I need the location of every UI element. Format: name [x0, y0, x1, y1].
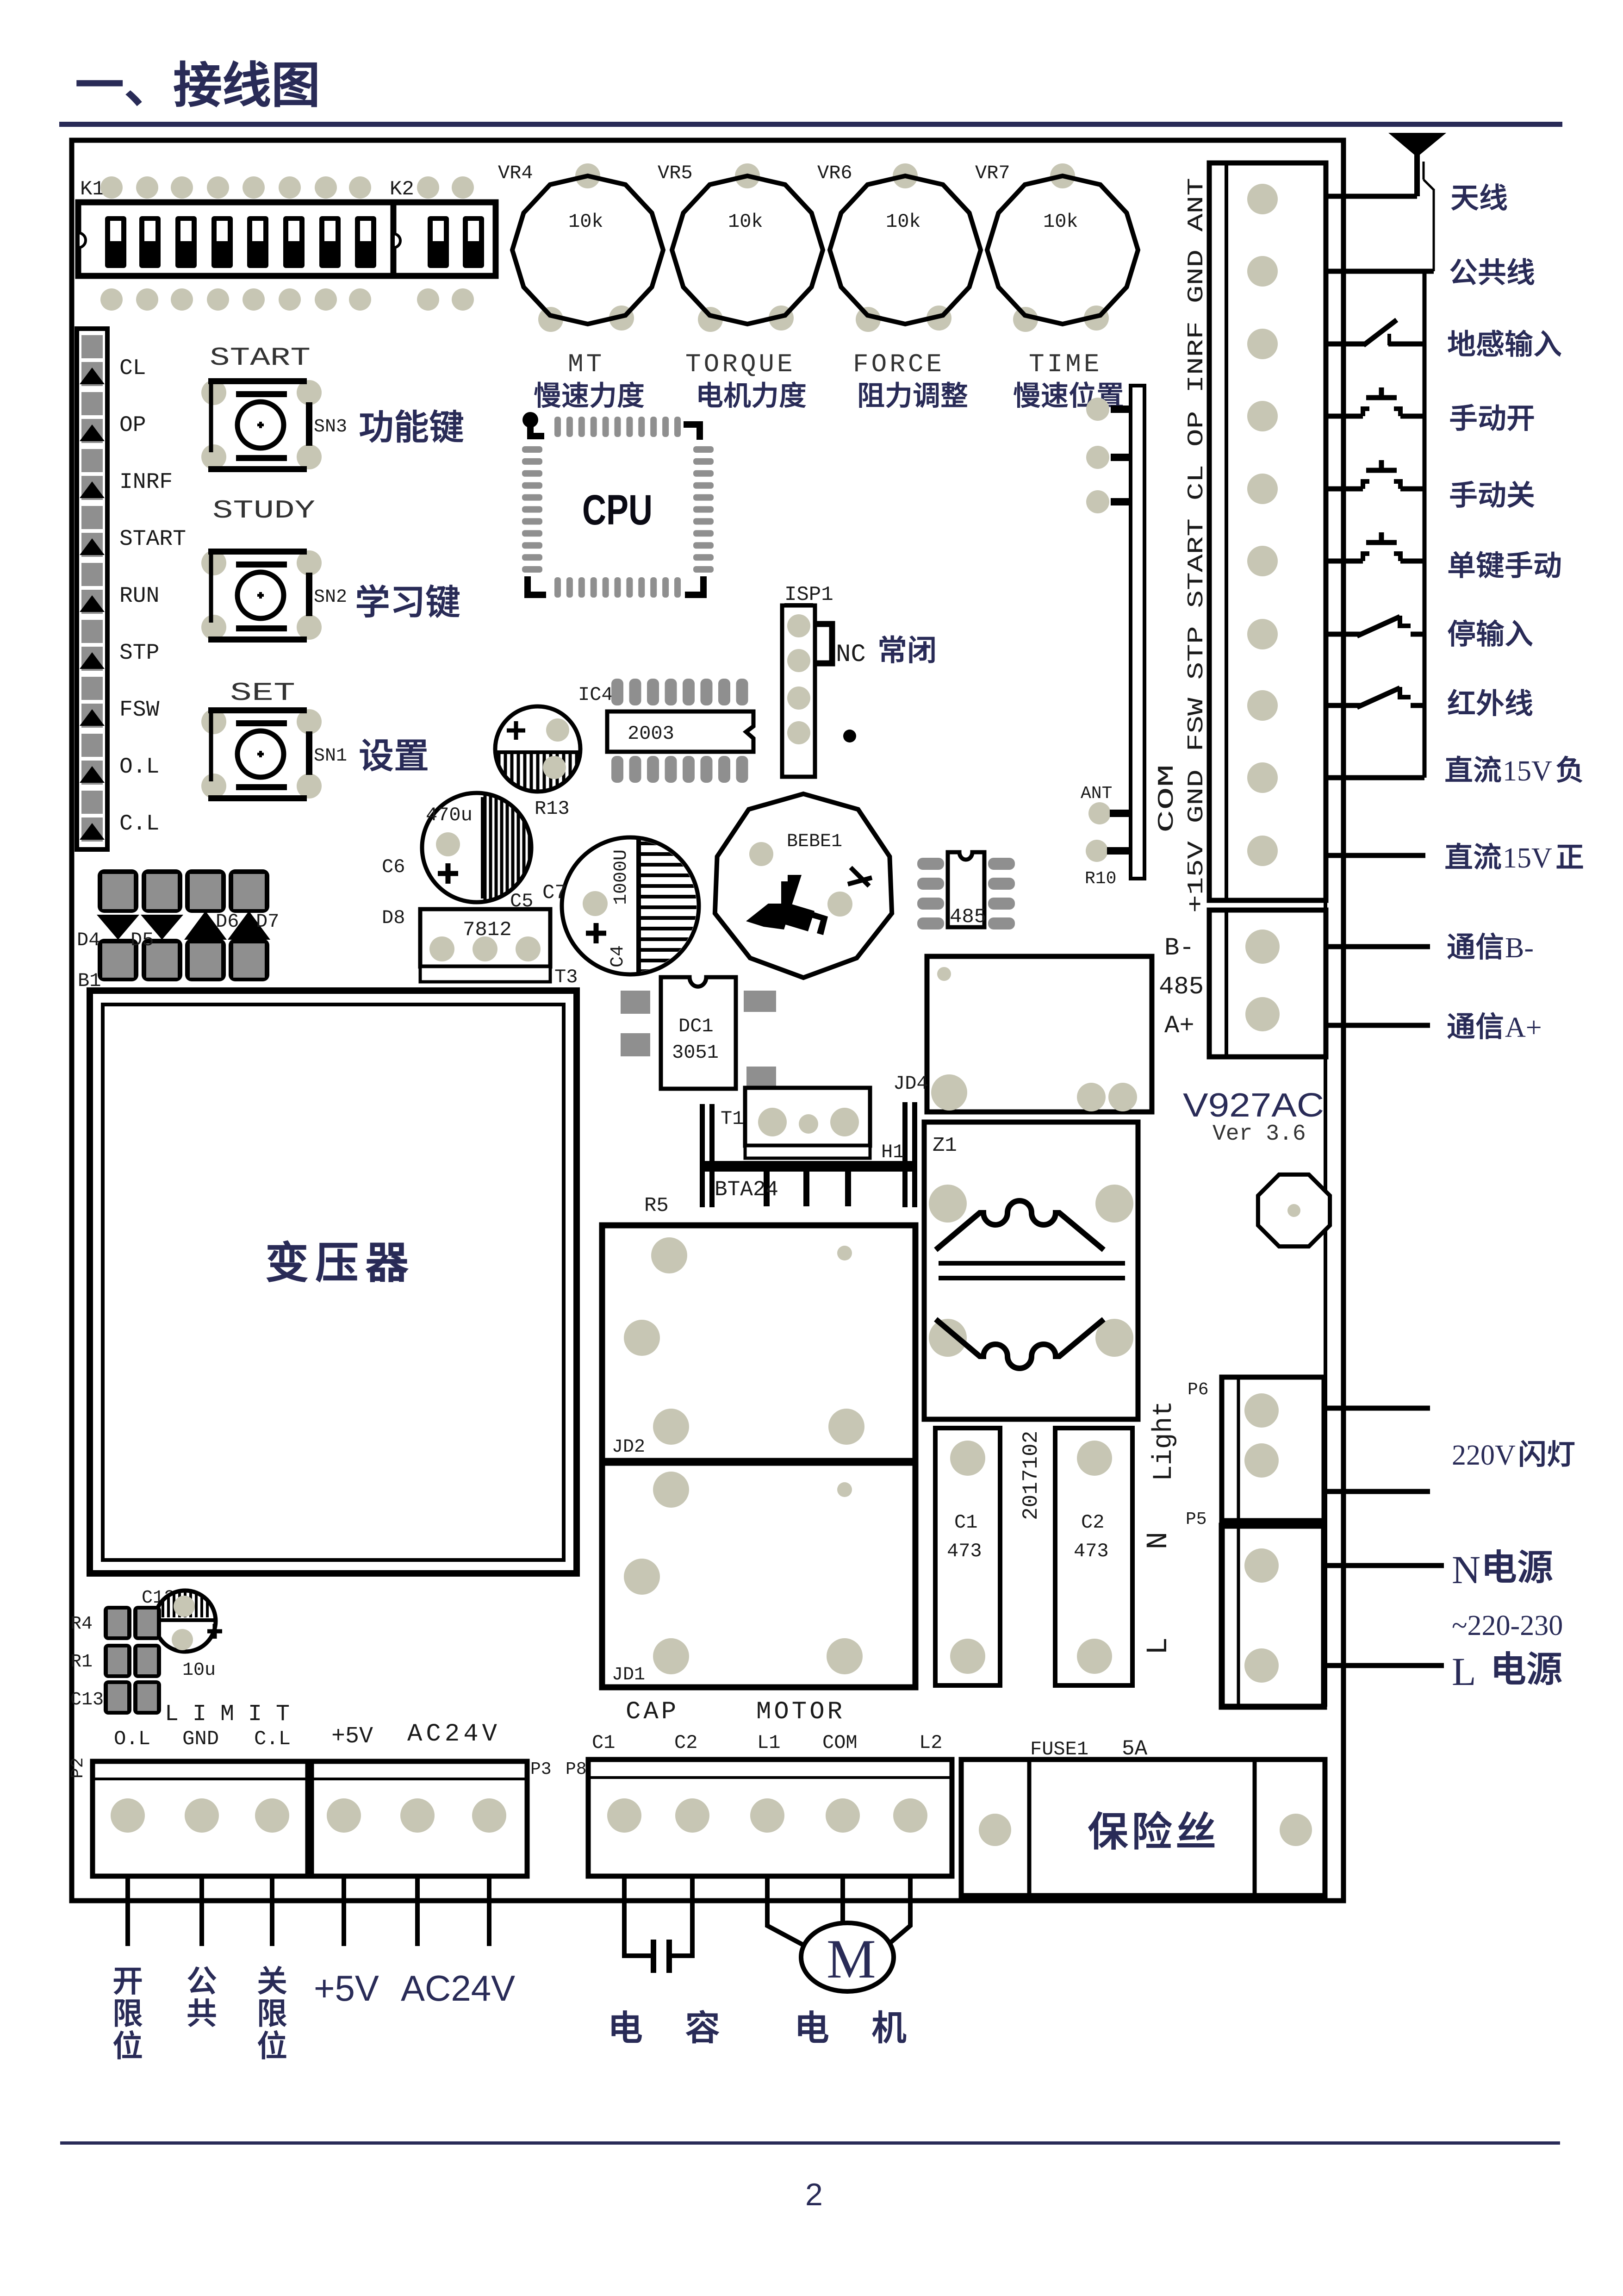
svg-text:D8: D8: [382, 907, 405, 929]
svg-text:BEBE1: BEBE1: [787, 831, 842, 852]
svg-text:SN3: SN3: [314, 417, 347, 437]
svg-text:N: N: [1452, 1547, 1480, 1592]
svg-text:L1: L1: [757, 1732, 780, 1754]
svg-text:R1: R1: [70, 1652, 93, 1672]
svg-text:MOTOR: MOTOR: [756, 1698, 845, 1726]
svg-text:VR7: VR7: [975, 162, 1010, 184]
svg-text:473: 473: [947, 1540, 982, 1562]
svg-text:COM: COM: [1155, 764, 1180, 833]
svg-text:473: 473: [1074, 1540, 1109, 1562]
svg-text:NC: NC: [836, 641, 866, 669]
svg-text:T1: T1: [721, 1108, 744, 1130]
svg-text:A+: A+: [1505, 1012, 1542, 1043]
svg-text:VR4: VR4: [498, 162, 533, 184]
svg-text:+15V GND FSW STP START CL OP I: +15V GND FSW STP START CL OP INRF GND AN…: [1184, 178, 1209, 913]
svg-text:GND: GND: [182, 1728, 219, 1751]
svg-text:SN1: SN1: [314, 746, 347, 767]
svg-text:CL: CL: [119, 356, 146, 381]
svg-text:C4: C4: [608, 945, 628, 967]
svg-text:JD4: JD4: [893, 1073, 928, 1095]
svg-text:JD2: JD2: [612, 1437, 645, 1458]
svg-text:L2: L2: [919, 1732, 942, 1754]
svg-text:2: 2: [805, 2177, 823, 2212]
svg-text:SN2: SN2: [314, 587, 347, 608]
svg-text:P2: P2: [68, 1757, 88, 1778]
svg-text:TORQUE: TORQUE: [685, 349, 796, 379]
svg-text:OP: OP: [119, 413, 146, 438]
svg-text:INRF: INRF: [119, 470, 173, 495]
svg-text:B-: B-: [1164, 934, 1194, 962]
svg-text:N: N: [1142, 1532, 1175, 1549]
svg-text:RUN: RUN: [119, 584, 159, 609]
svg-text:~220-230: ~220-230: [1452, 1610, 1563, 1641]
svg-text:D5: D5: [131, 929, 154, 951]
svg-text:L: L: [1452, 1649, 1476, 1694]
svg-text:P5: P5: [1186, 1510, 1207, 1529]
svg-text:C1: C1: [592, 1732, 615, 1754]
svg-text:H1: H1: [881, 1141, 904, 1163]
svg-text:C6: C6: [382, 856, 405, 878]
svg-text:C1: C1: [954, 1511, 977, 1534]
svg-text:485: 485: [1159, 973, 1204, 1001]
svg-text:O.L: O.L: [114, 1728, 150, 1751]
svg-text:START: START: [210, 343, 311, 373]
svg-text:C.L: C.L: [119, 811, 159, 836]
svg-text:D6: D6: [216, 911, 239, 933]
svg-text:M: M: [827, 1928, 876, 1990]
svg-text:FSW: FSW: [119, 698, 160, 723]
svg-text:+5V: +5V: [331, 1723, 373, 1750]
svg-text:A+: A+: [1164, 1012, 1194, 1040]
svg-text:CPU: CPU: [582, 487, 653, 534]
svg-text:C2: C2: [674, 1732, 697, 1754]
svg-text:R4: R4: [70, 1614, 93, 1635]
svg-text:ANT: ANT: [1081, 784, 1112, 804]
svg-text:B-: B-: [1505, 932, 1534, 964]
svg-text:DC1: DC1: [678, 1015, 714, 1037]
svg-text:Z1: Z1: [933, 1134, 957, 1157]
svg-text:CAP: CAP: [626, 1698, 679, 1726]
svg-text:470u: 470u: [426, 804, 473, 826]
svg-text:P8: P8: [566, 1759, 587, 1779]
svg-text:Light: Light: [1149, 1401, 1179, 1481]
svg-text:C7: C7: [542, 881, 567, 905]
svg-text:MT: MT: [568, 349, 604, 379]
svg-text:C2: C2: [1081, 1511, 1104, 1534]
svg-text:R5: R5: [644, 1194, 669, 1217]
svg-text:485: 485: [950, 905, 986, 929]
svg-text:15V: 15V: [1503, 755, 1552, 787]
svg-text:1000U: 1000U: [611, 849, 632, 905]
svg-text:COM: COM: [822, 1732, 858, 1754]
svg-text:10k: 10k: [728, 211, 763, 233]
svg-text:10k: 10k: [1043, 211, 1078, 233]
svg-text:2017102: 2017102: [1019, 1431, 1043, 1520]
svg-text:2003: 2003: [628, 723, 674, 745]
svg-text:C.L: C.L: [254, 1728, 291, 1751]
svg-text:START: START: [119, 527, 186, 552]
svg-text:220V: 220V: [1452, 1440, 1516, 1471]
svg-text:STP: STP: [119, 641, 159, 666]
svg-text:10k: 10k: [886, 211, 921, 233]
svg-text:15V: 15V: [1503, 842, 1552, 874]
svg-text:JD1: JD1: [612, 1665, 645, 1685]
svg-text:TIME: TIME: [1029, 349, 1102, 379]
svg-text:STUDY: STUDY: [212, 496, 315, 525]
svg-text:R10: R10: [1085, 869, 1116, 889]
svg-text:IC4: IC4: [578, 684, 613, 706]
svg-text:O.L: O.L: [119, 755, 159, 780]
svg-text:P3: P3: [530, 1759, 552, 1779]
svg-text:T3: T3: [554, 966, 578, 988]
svg-text:K2: K2: [390, 178, 414, 201]
svg-text:AC24V: AC24V: [407, 1720, 501, 1748]
svg-text:C13: C13: [70, 1690, 104, 1710]
svg-text:AC24V: AC24V: [401, 1968, 515, 2009]
svg-text:Ver 3.6: Ver 3.6: [1213, 1122, 1306, 1147]
svg-text:10k: 10k: [568, 211, 603, 233]
svg-text:P6: P6: [1188, 1380, 1209, 1400]
svg-text:10u: 10u: [182, 1660, 216, 1681]
svg-text:VR5: VR5: [658, 162, 693, 184]
svg-text:ISP1: ISP1: [784, 583, 833, 606]
svg-text:BTA24: BTA24: [715, 1178, 778, 1202]
svg-text:R13: R13: [535, 798, 570, 820]
svg-text:+5V: +5V: [314, 1968, 379, 2009]
svg-text:V927AC: V927AC: [1183, 1087, 1324, 1124]
svg-text:FORCE: FORCE: [853, 349, 945, 379]
svg-text:D7: D7: [256, 911, 279, 933]
svg-text:D4: D4: [77, 929, 100, 951]
svg-text:3051: 3051: [672, 1042, 719, 1064]
svg-text:L: L: [1142, 1637, 1175, 1655]
svg-text:SET: SET: [230, 678, 295, 708]
svg-text:L I M I T: L I M I T: [165, 1701, 290, 1728]
svg-text:VR6: VR6: [817, 162, 852, 184]
